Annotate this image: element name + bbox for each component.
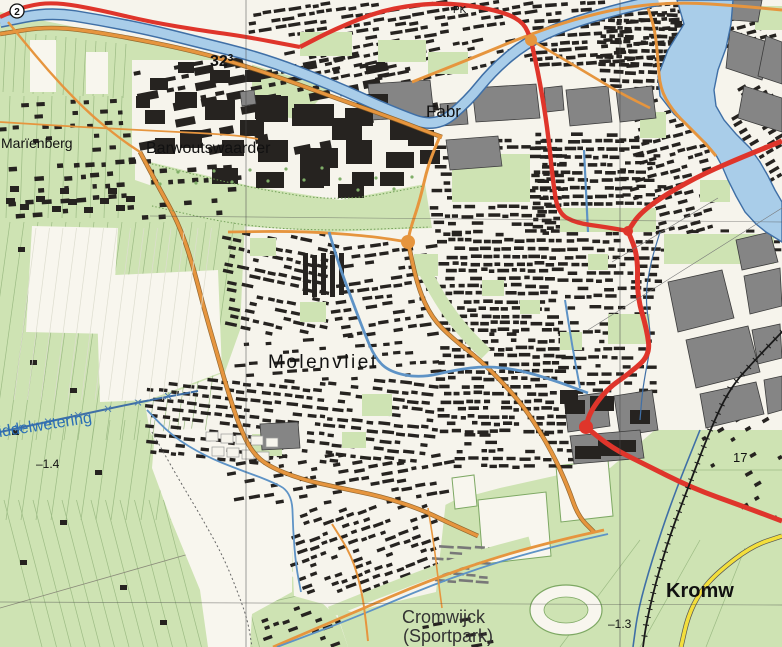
svg-text:–1.4: –1.4 [36,457,60,471]
svg-text:17: 17 [733,450,747,465]
svg-text:Marïenberg: Marïenberg [1,135,73,151]
svg-text:2: 2 [14,7,20,18]
svg-text:Fabr: Fabr [426,102,461,121]
svg-text:PK: PK [453,5,467,16]
svg-text:–1.3: –1.3 [608,617,632,631]
svg-text:Kromw: Kromw [666,580,734,602]
svg-text:(Sportpark): (Sportpark) [403,626,493,646]
svg-text:Barwoutswaarder: Barwoutswaarder [146,140,271,157]
svg-text:Molenvliet: Molenvliet [268,352,379,373]
svg-text:Cromwijck: Cromwijck [402,607,486,627]
